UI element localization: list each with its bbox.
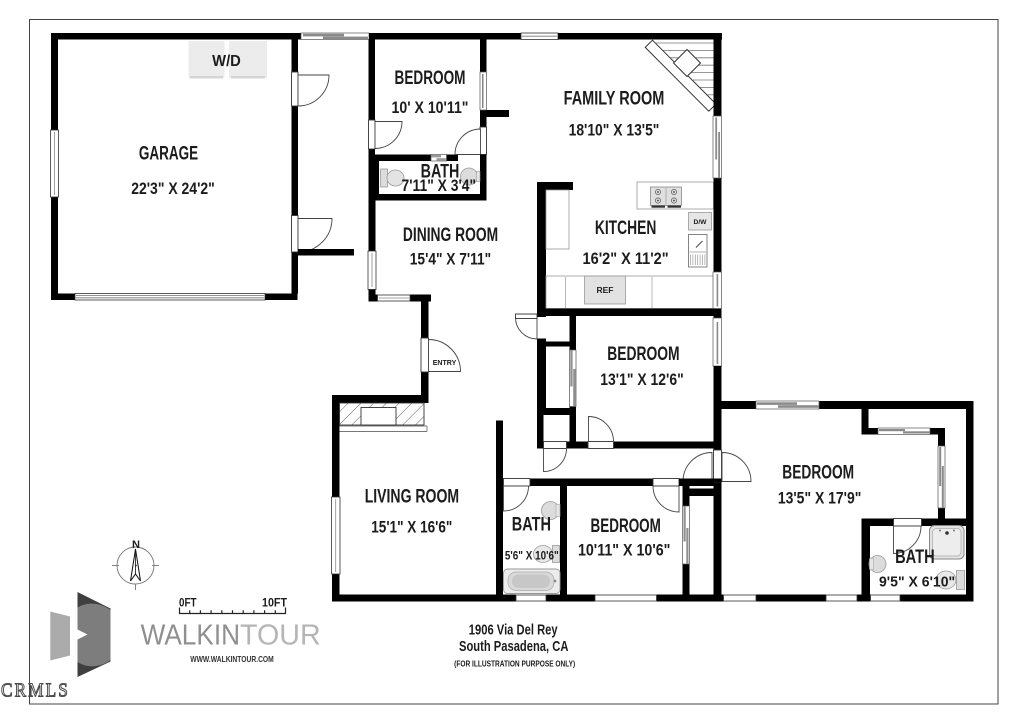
svg-text:GARAGE: GARAGE <box>139 143 198 164</box>
svg-text:FAMILY ROOM: FAMILY ROOM <box>564 89 665 110</box>
svg-text:22'3" X 24'2": 22'3" X 24'2" <box>131 180 215 198</box>
svg-text:KITCHEN: KITCHEN <box>595 218 657 239</box>
svg-text:DINING ROOM: DINING ROOM <box>403 225 498 246</box>
svg-text:13'5" X 17'9": 13'5" X 17'9" <box>778 489 862 507</box>
svg-text:TOUR: TOUR <box>240 620 321 652</box>
svg-text:BEDROOM: BEDROOM <box>782 462 854 483</box>
svg-text:BEDROOM: BEDROOM <box>591 516 661 537</box>
svg-text:ENTRY: ENTRY <box>433 358 457 367</box>
svg-text:10'11" X 10'6": 10'11" X 10'6" <box>578 541 671 559</box>
svg-text:10' X 10'11": 10' X 10'11" <box>392 99 469 117</box>
svg-text:16'2" X 11'2": 16'2" X 11'2" <box>583 250 669 268</box>
svg-text:13'1" X 12'6": 13'1" X 12'6" <box>600 371 683 389</box>
svg-text:WWW.WALKINTOUR.COM: WWW.WALKINTOUR.COM <box>190 654 274 664</box>
svg-text:1906 Via Del Rey: 1906 Via Del Rey <box>469 621 558 638</box>
svg-text:BATH: BATH <box>512 515 551 536</box>
svg-text:9'5" X 6'10": 9'5" X 6'10" <box>879 573 955 590</box>
svg-text:(FOR ILLUSTRATION PURPOSE ONLY: (FOR ILLUSTRATION PURPOSE ONLY) <box>454 659 575 669</box>
svg-text:D/W: D/W <box>694 219 708 226</box>
svg-text:REF: REF <box>597 286 614 295</box>
svg-text:5'6" X 10'6": 5'6" X 10'6" <box>505 551 559 563</box>
svg-text:LIVING ROOM: LIVING ROOM <box>365 487 459 508</box>
svg-text:BEDROOM: BEDROOM <box>607 344 679 365</box>
svg-text:15'1" X 16'6": 15'1" X 16'6" <box>371 518 452 536</box>
svg-text:WALKIN: WALKIN <box>141 620 240 652</box>
svg-text:BEDROOM: BEDROOM <box>395 68 466 89</box>
svg-text:15'4" X 7'11": 15'4" X 7'11" <box>410 250 491 268</box>
svg-text:South Pasadena, CA: South Pasadena, CA <box>459 638 569 655</box>
svg-text:10FT: 10FT <box>262 595 288 609</box>
svg-text:18'10" X 13'5": 18'10" X 13'5" <box>569 122 660 140</box>
svg-text:0FT: 0FT <box>179 595 197 609</box>
svg-text:7'11" X 3'4": 7'11" X 3'4" <box>402 177 477 195</box>
svg-text:CRMLS: CRMLS <box>1 680 70 702</box>
svg-text:W/D: W/D <box>212 53 241 70</box>
svg-text:BATH: BATH <box>895 547 935 568</box>
